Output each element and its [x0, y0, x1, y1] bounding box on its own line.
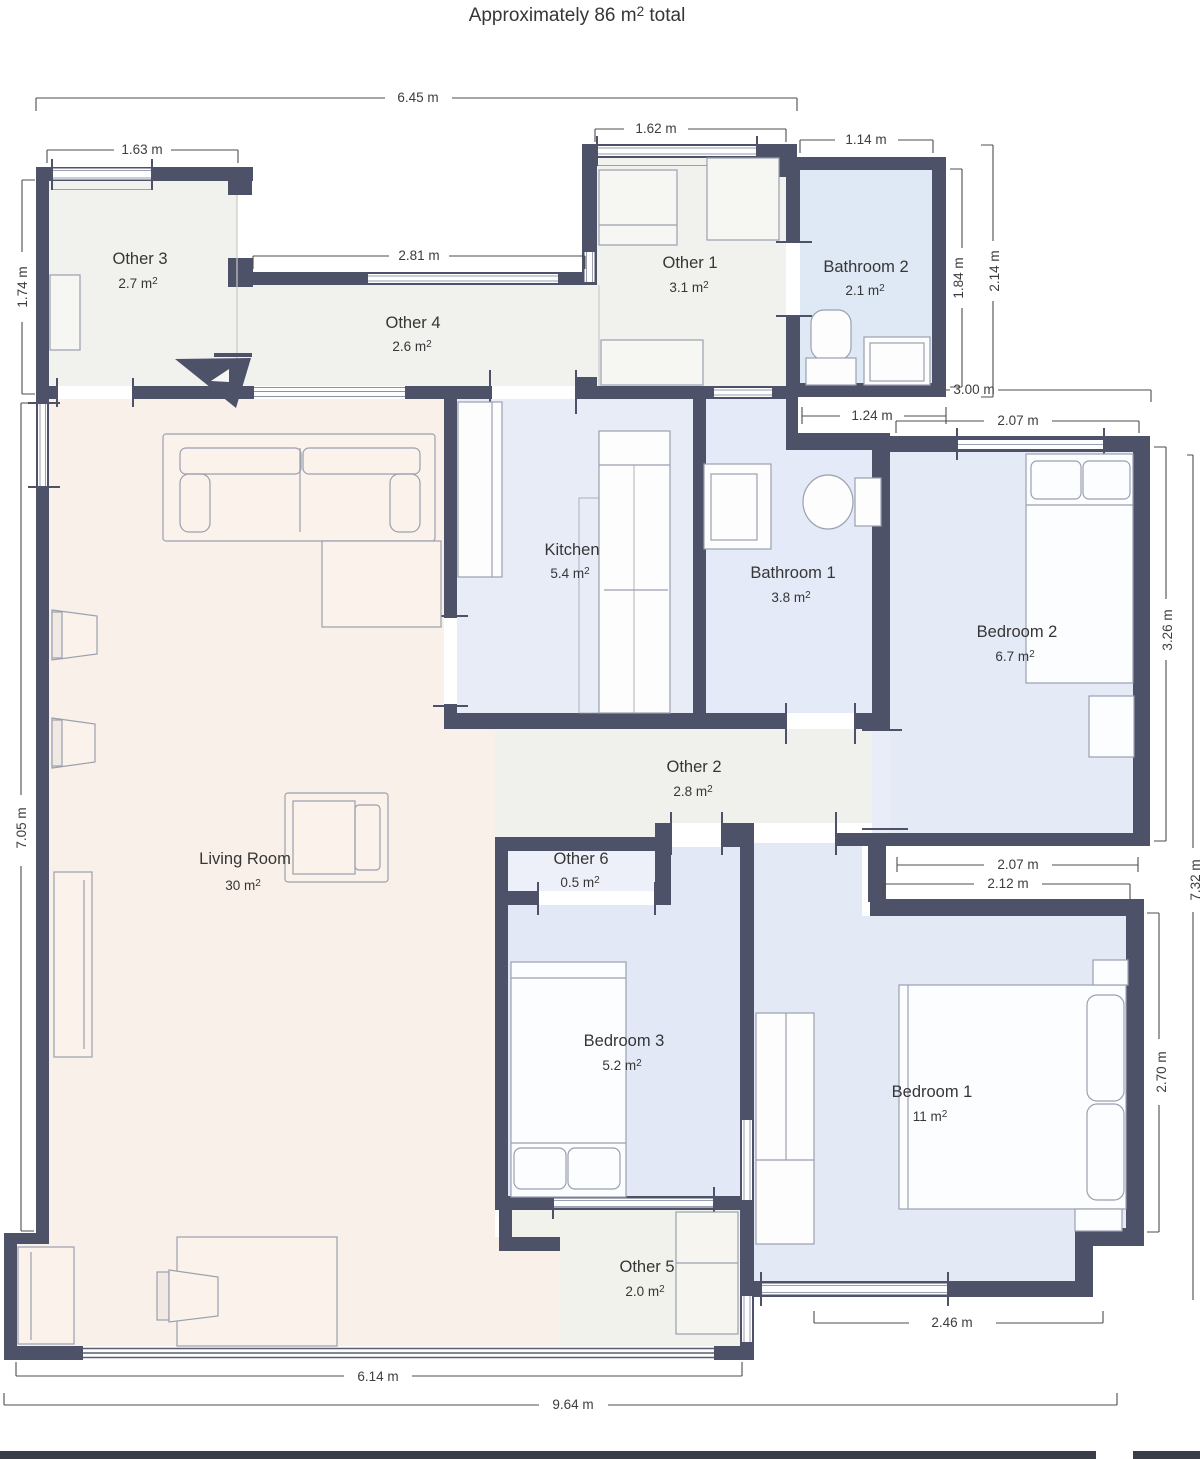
svg-text:1.62 m: 1.62 m: [635, 121, 676, 136]
svg-text:2.46 m: 2.46 m: [931, 1315, 972, 1330]
svg-text:2.14 m: 2.14 m: [987, 250, 1002, 291]
svg-text:2.12 m: 2.12 m: [987, 876, 1028, 891]
svg-text:3.00 m: 3.00 m: [953, 382, 994, 397]
svg-text:Bathroom 2: Bathroom 2: [823, 258, 908, 276]
svg-text:Kitchen: Kitchen: [544, 541, 599, 559]
svg-text:6.45 m: 6.45 m: [397, 90, 438, 105]
svg-text:1.24 m: 1.24 m: [851, 408, 892, 423]
svg-text:Other 5: Other 5: [619, 1258, 674, 1276]
svg-text:Bedroom 2: Bedroom 2: [977, 623, 1058, 641]
svg-text:Other 1: Other 1: [662, 254, 717, 272]
svg-text:1.84 m: 1.84 m: [951, 257, 966, 298]
svg-text:Other 3: Other 3: [112, 250, 167, 268]
svg-text:Bathroom 1: Bathroom 1: [750, 564, 835, 582]
svg-text:6.14 m: 6.14 m: [357, 1369, 398, 1384]
svg-text:Bedroom 3: Bedroom 3: [584, 1032, 665, 1050]
svg-text:Bedroom 1: Bedroom 1: [892, 1083, 973, 1101]
svg-text:2.81 m: 2.81 m: [398, 248, 439, 263]
svg-text:7.05 m: 7.05 m: [14, 807, 29, 848]
svg-text:Other 2: Other 2: [666, 758, 721, 776]
svg-text:1.63 m: 1.63 m: [121, 142, 162, 157]
svg-text:3.26 m: 3.26 m: [1160, 609, 1175, 650]
svg-text:9.64 m: 9.64 m: [552, 1397, 593, 1412]
svg-text:2.70 m: 2.70 m: [1154, 1051, 1169, 1092]
svg-text:Other 4: Other 4: [385, 314, 440, 332]
svg-text:Other 6: Other 6: [553, 850, 608, 868]
svg-text:Living Room: Living Room: [199, 850, 291, 868]
svg-text:2.07 m: 2.07 m: [997, 857, 1038, 872]
svg-text:1.14 m: 1.14 m: [845, 132, 886, 147]
svg-text:2.07 m: 2.07 m: [997, 413, 1038, 428]
svg-text:Approximately 86 m2 total: Approximately 86 m2 total: [469, 4, 686, 26]
svg-text:7.32 m: 7.32 m: [1188, 859, 1200, 900]
svg-text:1.74 m: 1.74 m: [15, 266, 30, 307]
